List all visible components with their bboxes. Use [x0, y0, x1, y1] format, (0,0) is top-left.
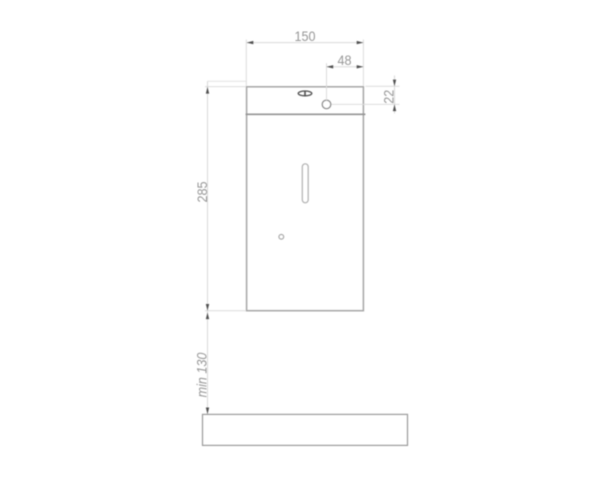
- svg-text:285: 285: [194, 182, 210, 203]
- svg-text:150: 150: [295, 28, 316, 44]
- svg-text:22: 22: [381, 90, 397, 104]
- svg-text:min 130: min 130: [194, 352, 210, 397]
- svg-text:48: 48: [338, 53, 352, 69]
